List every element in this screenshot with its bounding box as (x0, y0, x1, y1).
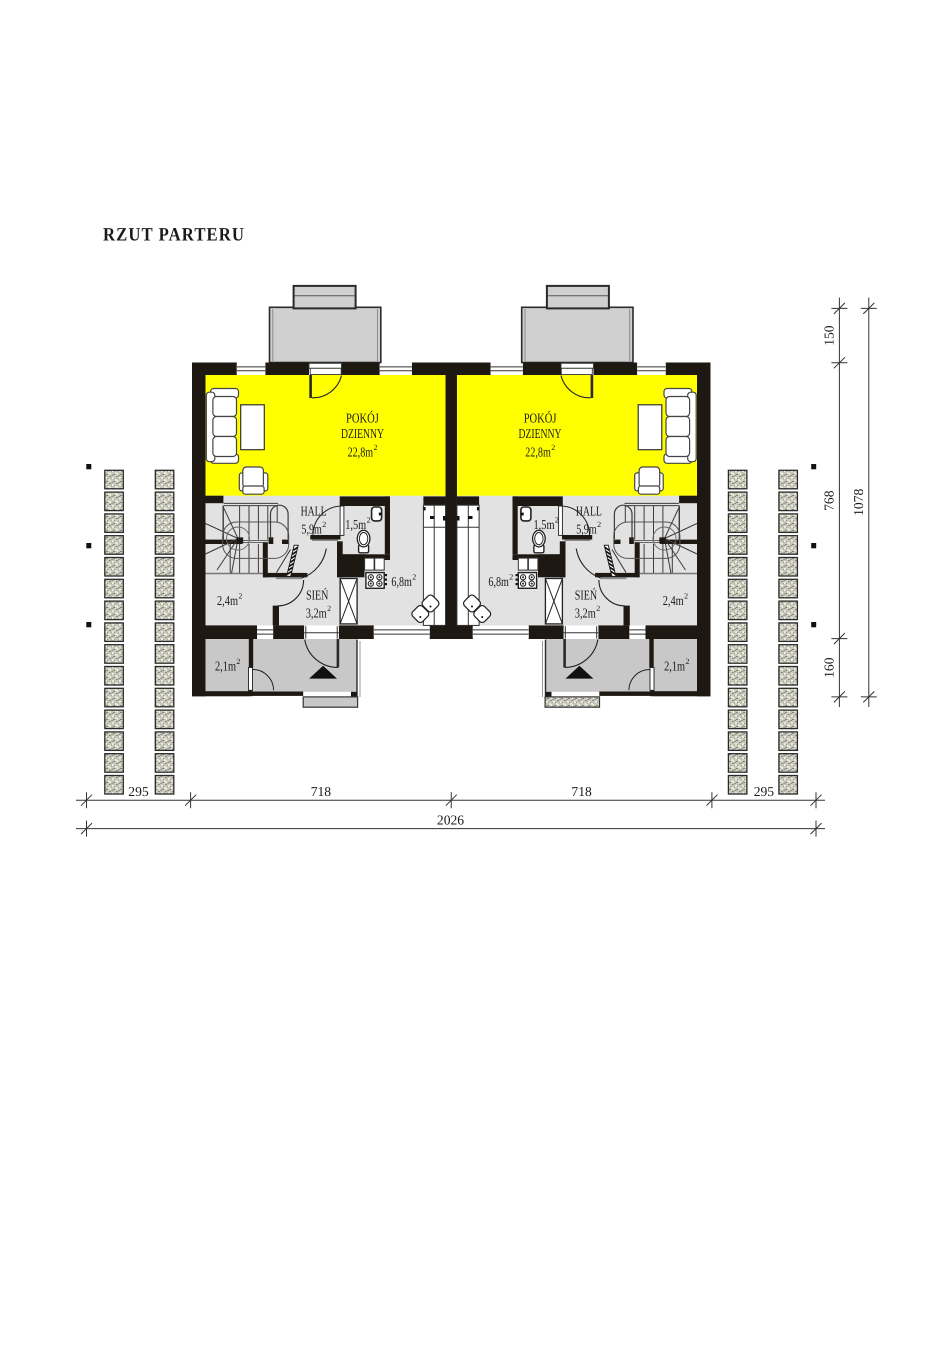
svg-text:2: 2 (374, 443, 378, 452)
svg-text:2: 2 (555, 516, 559, 525)
svg-text:1,5m: 1,5m (345, 517, 366, 532)
svg-text:160: 160 (822, 657, 837, 678)
svg-text:POKÓJ: POKÓJ (524, 411, 557, 426)
svg-text:22,8m: 22,8m (348, 445, 374, 460)
svg-text:2: 2 (686, 657, 690, 666)
svg-text:5,9m: 5,9m (301, 521, 322, 536)
svg-text:2,4m: 2,4m (663, 593, 684, 608)
svg-text:2,1m: 2,1m (664, 659, 685, 674)
svg-text:2,4m: 2,4m (217, 593, 238, 608)
svg-text:2: 2 (327, 604, 331, 613)
svg-text:2: 2 (597, 520, 601, 529)
svg-text:22,8m: 22,8m (525, 445, 551, 460)
svg-text:6,8m: 6,8m (391, 574, 412, 589)
svg-text:2: 2 (322, 520, 326, 529)
svg-text:RZUT PARTERU: RZUT PARTERU (103, 225, 245, 246)
svg-text:SIEŃ: SIEŃ (575, 588, 597, 603)
svg-text:2: 2 (684, 591, 688, 600)
svg-text:2: 2 (412, 573, 416, 582)
svg-text:3,2m: 3,2m (575, 605, 596, 620)
svg-text:DZIENNY: DZIENNY (341, 426, 384, 441)
svg-text:2,1m: 2,1m (215, 659, 236, 674)
svg-text:2: 2 (236, 657, 240, 666)
svg-text:150: 150 (822, 325, 837, 346)
svg-text:2: 2 (238, 591, 242, 600)
svg-text:2: 2 (367, 516, 371, 525)
svg-text:1,5m: 1,5m (534, 517, 555, 532)
svg-text:2: 2 (509, 573, 513, 582)
svg-text:295: 295 (128, 784, 149, 799)
svg-text:718: 718 (571, 784, 592, 799)
svg-text:718: 718 (311, 784, 332, 799)
svg-text:2: 2 (596, 604, 600, 613)
svg-text:HALL: HALL (301, 503, 327, 518)
svg-text:HALL: HALL (576, 503, 602, 518)
svg-text:POKÓJ: POKÓJ (346, 411, 379, 426)
svg-text:DZIENNY: DZIENNY (519, 426, 562, 441)
svg-text:2026: 2026 (437, 813, 464, 828)
svg-text:295: 295 (754, 784, 775, 799)
svg-text:3,2m: 3,2m (306, 605, 327, 620)
svg-text:768: 768 (822, 490, 837, 511)
svg-text:6,8m: 6,8m (488, 574, 509, 589)
svg-text:1078: 1078 (851, 489, 866, 516)
svg-text:5,9m: 5,9m (576, 521, 597, 536)
svg-text:2: 2 (551, 443, 555, 452)
svg-text:SIEŃ: SIEŃ (306, 588, 328, 603)
